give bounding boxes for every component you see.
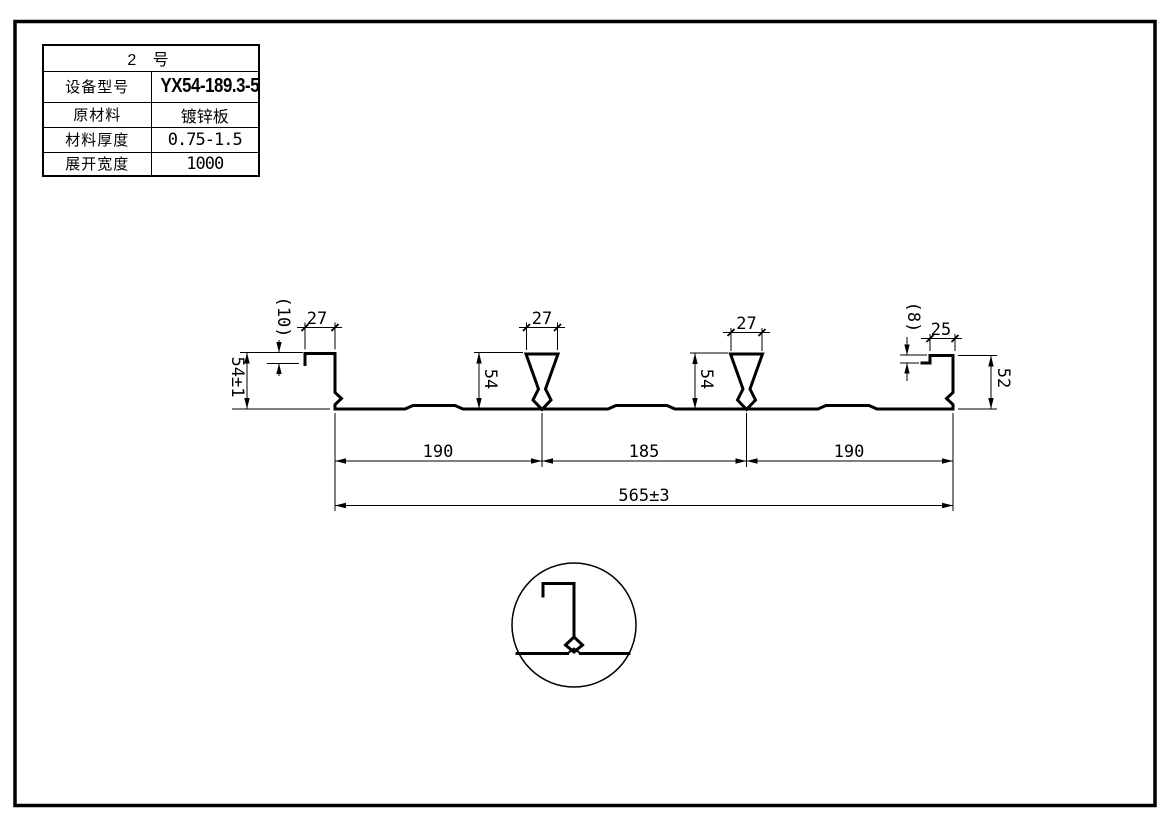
- raw-material-value: 镀锌板: [151, 102, 259, 127]
- dim-span-left-label: 190: [423, 442, 454, 462]
- dimension-ticks: [302, 324, 959, 342]
- dim-rib2-height-label: 54: [696, 369, 716, 389]
- dim-span-middle-label: 185: [629, 442, 660, 462]
- dimension-lines: [232, 323, 997, 512]
- dim-right-height-label: 52: [993, 368, 1013, 388]
- detail-view: [512, 563, 636, 687]
- profile-outline: [305, 354, 953, 410]
- raw-material-label: 原材料: [43, 102, 151, 127]
- model-value: YX54-189.3-568: [160, 75, 249, 98]
- dim-right-hook-width-label: 25: [931, 320, 951, 340]
- detail-upstand: [543, 584, 574, 638]
- dim-rib1-height-label: 54: [480, 369, 500, 389]
- dim-rib2-width-label: 27: [736, 314, 756, 334]
- model-label: 设备型号: [43, 71, 151, 102]
- profile-bottom-flange: [335, 406, 953, 410]
- dim-overall-width-label: 565±3: [618, 486, 669, 506]
- table-row: 展开宽度 1000: [43, 152, 259, 176]
- unfold-width-label: 展开宽度: [43, 152, 151, 176]
- thickness-label: 材料厚度: [43, 127, 151, 152]
- profile-right-edge: [922, 356, 953, 410]
- dim-left-hook-width-label: 27: [307, 309, 327, 329]
- title-block: 2 号 设备型号 YX54-189.3-568 原材料 镀锌板 材料厚度 0.7…: [42, 44, 260, 177]
- drawing-sheet: 27 (10) 54±1 27 54 27 54 (8) 25 52 190 1…: [0, 0, 1169, 827]
- unfold-width-value: 1000: [151, 152, 259, 176]
- table-row: 材料厚度 0.75-1.5: [43, 127, 259, 152]
- thickness-value: 0.75-1.5: [151, 127, 259, 152]
- dim-right-hook-drop-label: (8): [903, 302, 923, 333]
- profile-rib-2: [731, 354, 763, 410]
- dim-span-right-label: 190: [834, 442, 865, 462]
- dim-left-hook-drop-label: (10): [273, 297, 293, 338]
- table-row: 原材料 镀锌板: [43, 102, 259, 127]
- profile-left-edge: [305, 354, 342, 410]
- detail-profile: [517, 584, 629, 654]
- title-block-header-row: 2 号: [43, 45, 259, 71]
- table-row: 设备型号 YX54-189.3-568: [43, 71, 259, 102]
- sheet-number-label: 2 号: [43, 45, 259, 71]
- dim-left-height-label: 54±1: [227, 357, 247, 398]
- dimension-labels: 27 (10) 54±1 27 54 27 54 (8) 25 52 190 1…: [227, 297, 1013, 506]
- dim-rib1-width-label: 27: [532, 309, 552, 329]
- dimension-arrowheads: [244, 342, 993, 508]
- profile-rib-1: [526, 354, 558, 410]
